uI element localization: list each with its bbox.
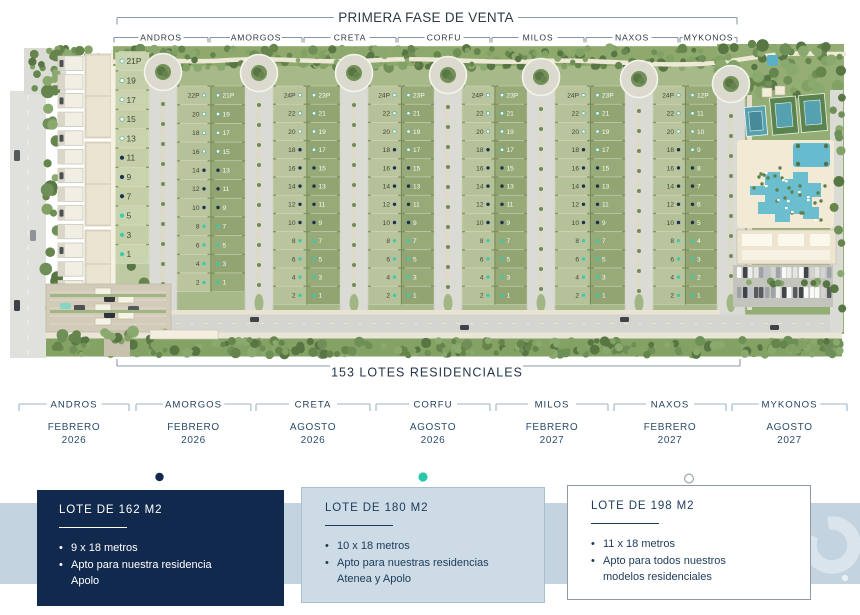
svg-text:2026: 2026 xyxy=(301,435,326,446)
svg-text:2026: 2026 xyxy=(421,435,446,446)
svg-text:MYKONOS: MYKONOS xyxy=(684,33,734,43)
svg-text:CORFU: CORFU xyxy=(413,400,452,411)
svg-text:PRIMERA FASE DE VENTA: PRIMERA FASE DE VENTA xyxy=(338,10,514,25)
svg-text:AGOSTO: AGOSTO xyxy=(290,422,336,433)
svg-text:MYKONOS: MYKONOS xyxy=(761,400,817,411)
svg-text:2027: 2027 xyxy=(658,435,683,446)
svg-text:2027: 2027 xyxy=(540,435,565,446)
svg-text:FEBRERO: FEBRERO xyxy=(526,422,579,433)
svg-text:CRETA: CRETA xyxy=(295,400,332,411)
svg-text:2027: 2027 xyxy=(777,435,802,446)
svg-text:FEBRERO: FEBRERO xyxy=(48,422,101,433)
svg-text:NAXOS: NAXOS xyxy=(651,400,690,411)
svg-text:AGOSTO: AGOSTO xyxy=(766,422,812,433)
svg-text:153 LOTES RESIDENCIALES: 153 LOTES RESIDENCIALES xyxy=(331,366,523,380)
svg-text:2026: 2026 xyxy=(62,435,87,446)
svg-text:ANDROS: ANDROS xyxy=(140,33,182,43)
svg-text:FEBRERO: FEBRERO xyxy=(644,422,697,433)
svg-text:AMORGOS: AMORGOS xyxy=(231,33,281,43)
svg-text:MILOS: MILOS xyxy=(523,33,554,43)
svg-text:CORFU: CORFU xyxy=(427,33,462,43)
svg-text:ANDROS: ANDROS xyxy=(50,400,97,411)
svg-text:NAXOS: NAXOS xyxy=(615,33,649,43)
svg-text:AMORGOS: AMORGOS xyxy=(165,400,222,411)
svg-text:FEBRERO: FEBRERO xyxy=(167,422,220,433)
svg-text:MILOS: MILOS xyxy=(535,400,570,411)
svg-text:CRETA: CRETA xyxy=(334,33,367,43)
svg-text:AGOSTO: AGOSTO xyxy=(410,422,456,433)
svg-text:2026: 2026 xyxy=(181,435,206,446)
